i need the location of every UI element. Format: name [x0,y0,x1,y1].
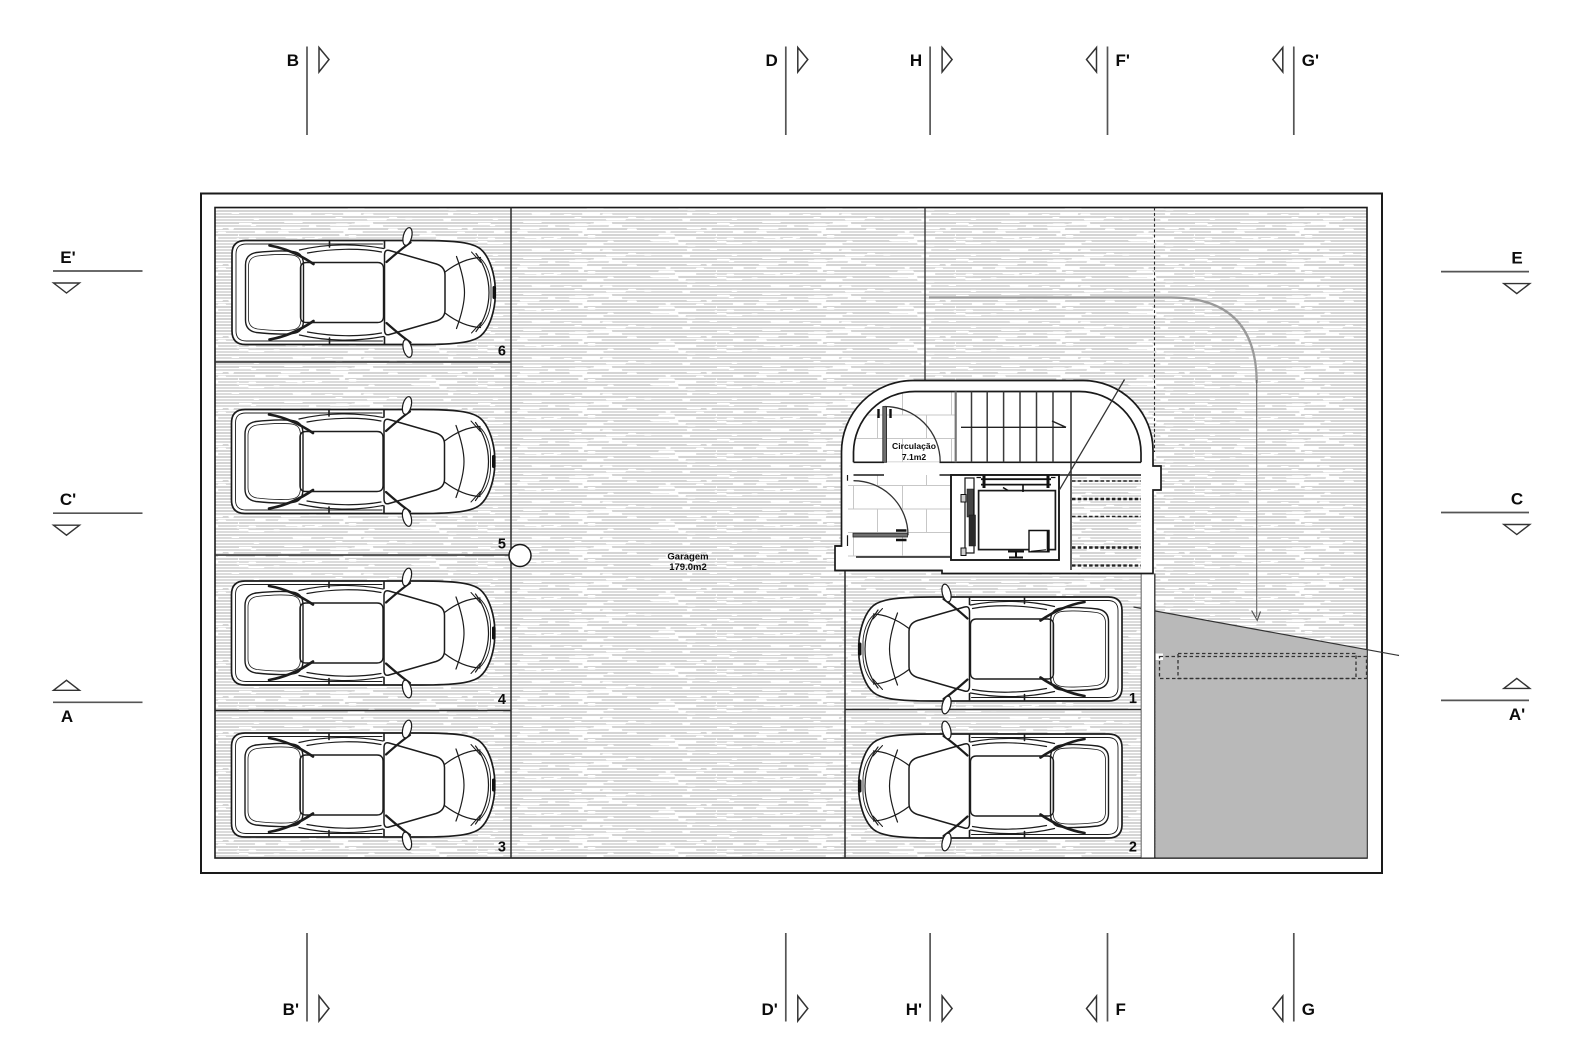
svg-text:E': E' [60,248,75,267]
svg-text:B': B' [283,1000,299,1019]
svg-text:G: G [1302,1000,1315,1019]
svg-text:F: F [1116,1000,1126,1019]
svg-text:4: 4 [498,692,506,708]
svg-text:Garagem: Garagem [667,552,708,563]
svg-text:F': F' [1116,51,1130,70]
svg-text:G': G' [1302,51,1319,70]
svg-text:H': H' [906,1000,922,1019]
svg-text:D: D [766,51,778,70]
svg-text:1: 1 [1129,691,1137,707]
svg-text:A': A' [1509,705,1525,724]
svg-text:H: H [910,51,922,70]
svg-text:6: 6 [498,344,506,360]
svg-text:A: A [61,707,73,726]
svg-text:D': D' [761,1000,777,1019]
svg-text:E: E [1511,249,1522,268]
svg-text:3: 3 [498,840,506,856]
svg-text:C: C [1511,490,1523,509]
svg-text:Circulação: Circulação [892,441,936,451]
svg-text:C': C' [60,490,76,509]
svg-text:2: 2 [1129,840,1137,856]
svg-text:7.1m2: 7.1m2 [902,452,927,462]
svg-text:5: 5 [498,537,506,553]
svg-text:179.0m2: 179.0m2 [669,562,707,573]
svg-text:B: B [287,51,299,70]
